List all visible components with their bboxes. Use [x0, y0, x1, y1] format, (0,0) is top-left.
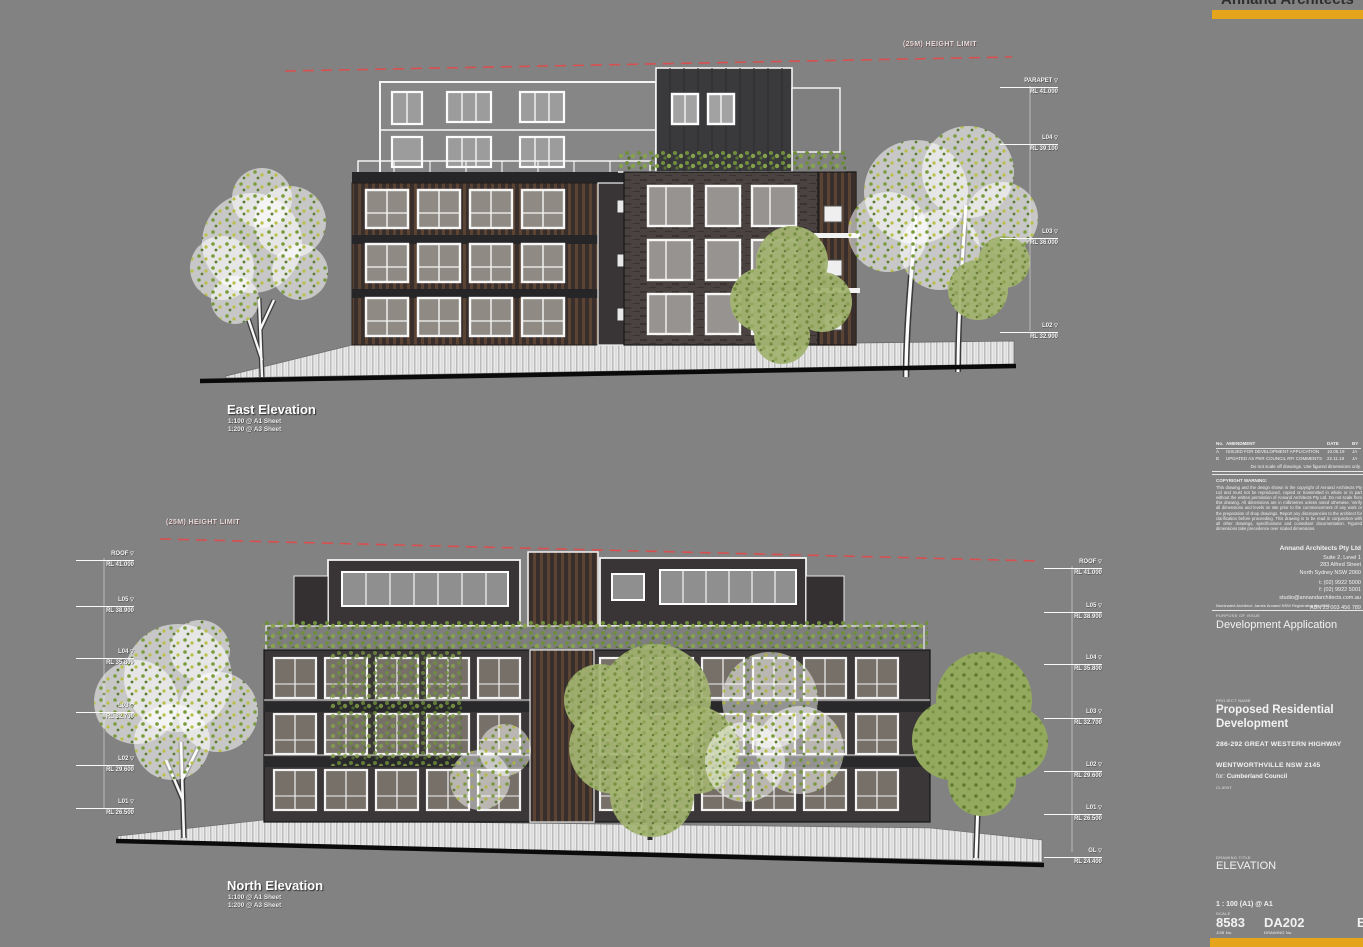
practice-logo: Annand Architects [1221, 0, 1354, 8]
notes-heading: COPYRIGHT WARNING: [1216, 478, 1362, 484]
north-right-tree [912, 652, 1048, 858]
level-datum-icon: ▽ [130, 649, 134, 655]
level-marker: L05 ▽ RL 38.900 [76, 597, 134, 615]
practice-address: North Sydney NSW 2060 [1216, 570, 1361, 577]
notes-text: This drawing and the design shown is the… [1216, 485, 1362, 532]
divider [1212, 610, 1363, 611]
level-marker: L05 ▽ RL 38.900 [1044, 603, 1102, 621]
practice-email: studio@annandarchitects.com.au [1216, 595, 1361, 602]
divider [1212, 471, 1363, 472]
divider [1212, 474, 1363, 475]
revision-letter: B [1357, 915, 1363, 930]
scale-note: Do not scale off drawings. Use figured d… [1216, 464, 1361, 469]
gold-bar-bottom [1210, 938, 1363, 947]
practice-fax: f: (02) 9922 5001 [1216, 587, 1361, 594]
drawing-number: DA202 [1264, 915, 1304, 930]
client-prefix: for: [1216, 773, 1225, 780]
status-label: PURPOSE OF ISSUE [1216, 613, 1260, 618]
level-datum-icon: ▽ [1054, 323, 1058, 329]
east-height-limit-line [285, 57, 1012, 71]
level-datum-icon: ▽ [130, 799, 134, 805]
client-label: CLIENT [1216, 785, 1232, 790]
level-datum-icon: ▽ [130, 756, 134, 762]
level-datum-icon: ▽ [1054, 78, 1058, 84]
project-label: PROJECT NAME [1216, 698, 1251, 703]
north-elevation-title: North Elevation [227, 878, 323, 893]
practice-tel: t: (02) 9922 5000 [1216, 580, 1361, 587]
north-elevation-drawing [94, 539, 1072, 865]
project-name-line2: Development [1216, 718, 1288, 731]
client-name: Cumberland Council [1227, 773, 1288, 780]
revision-row: B UPDATED AS PER COUNCIL RFI COMMENTS 22… [1216, 456, 1361, 463]
notes-block: COPYRIGHT WARNING: This drawing and the … [1216, 478, 1362, 531]
level-marker: L01 ▽ RL 26.500 [76, 799, 134, 817]
level-datum-icon: ▽ [1098, 848, 1102, 854]
level-marker: L02 ▽ RL 29.600 [76, 756, 134, 774]
level-marker: L04 ▽ RL 39.100 [1000, 135, 1058, 153]
level-datum-icon: ▽ [130, 597, 134, 603]
level-marker: PARAPET ▽ RL 41.000 [1000, 78, 1058, 96]
gold-bar-top [1212, 10, 1363, 19]
level-marker: L03 ▽ RL 36.000 [1000, 229, 1058, 247]
east-elevation-title: East Elevation [227, 402, 316, 417]
level-marker: L03 ▽ RL 32.700 [1044, 709, 1102, 727]
job-number-label: JOB No. [1216, 930, 1233, 935]
east-left-tree [190, 168, 328, 377]
elevation-drawing-canvas [0, 0, 1363, 947]
level-marker: L04 ▽ RL 35.800 [1044, 655, 1102, 673]
nominated-architect-line: Nominated Architect: James Annand NSW Re… [1216, 603, 1362, 608]
level-datum-icon: ▽ [1054, 229, 1058, 235]
level-marker: ROOF ▽ RL 41.000 [1044, 559, 1102, 577]
east-elevation-drawing [190, 57, 1038, 381]
scale-value: 1 : 100 (A1) @ A1 [1216, 901, 1273, 908]
practice-address: Suite 2, Level 1 [1216, 555, 1361, 562]
practice-name: Annand Architects Pty Ltd [1216, 545, 1361, 554]
level-datum-icon: ▽ [130, 551, 134, 557]
level-marker: L04 ▽ RL 35.800 [76, 649, 134, 667]
level-marker: L02 ▽ RL 29.600 [1044, 762, 1102, 780]
north-elevation-scale-a3: 1:200 @ A3 Sheet [228, 902, 281, 909]
drawing-sheet: (25M) HEIGHT LIMIT (25M) HEIGHT LIMIT Ea… [0, 0, 1363, 947]
level-marker: ROOF ▽ RL 41.000 [76, 551, 134, 569]
north-elevation-scale-a1: 1:100 @ A1 Sheet [228, 894, 281, 901]
level-marker: L02 ▽ RL 32.900 [1000, 323, 1058, 341]
level-datum-icon: ▽ [130, 703, 134, 709]
level-datum-icon: ▽ [1098, 762, 1102, 768]
project-address-line1: 286-292 GREAT WESTERN HIGHWAY [1216, 741, 1342, 748]
east-elevation-scale-a1: 1:100 @ A1 Sheet [228, 418, 281, 425]
issue-status: Development Application [1216, 619, 1337, 631]
client-line: for: Cumberland Council [1216, 773, 1287, 780]
east-height-limit-label: (25M) HEIGHT LIMIT [903, 41, 977, 48]
level-marker: L03 ▽ RL 32.700 [76, 703, 134, 721]
level-datum-icon: ▽ [1098, 655, 1102, 661]
level-datum-icon: ▽ [1098, 709, 1102, 715]
project-name-line1: Proposed Residential [1216, 704, 1334, 717]
level-datum-icon: ▽ [1054, 135, 1058, 141]
project-address-line2: WENTWORTHVILLE NSW 2145 [1216, 762, 1320, 769]
level-datum-icon: ▽ [1098, 603, 1102, 609]
drawing-number-label: DRAWING No. [1264, 930, 1293, 935]
level-datum-icon: ▽ [1098, 559, 1102, 565]
level-datum-icon: ▽ [1098, 805, 1102, 811]
north-height-limit-label: (25M) HEIGHT LIMIT [166, 519, 240, 526]
east-elevation-scale-a3: 1:200 @ A3 Sheet [228, 426, 281, 433]
level-marker: GL ▽ RL 24.400 [1044, 848, 1102, 866]
revision-table: No. AMENDMENT DATE BY A ISSUED FOR DEVEL… [1216, 441, 1361, 462]
practice-address: 283 Alfred Street [1216, 562, 1361, 569]
facade-vines [330, 648, 462, 766]
drawing-title: ELEVATION [1216, 860, 1276, 872]
level-marker: L01 ▽ RL 26.500 [1044, 805, 1102, 823]
title-block: Annand Architects No. AMENDMENT DATE BY … [1210, 0, 1363, 947]
job-number: 8583 [1216, 915, 1245, 930]
revision-row: A ISSUED FOR DEVELOPMENT APPLICATION 10.… [1216, 449, 1361, 456]
